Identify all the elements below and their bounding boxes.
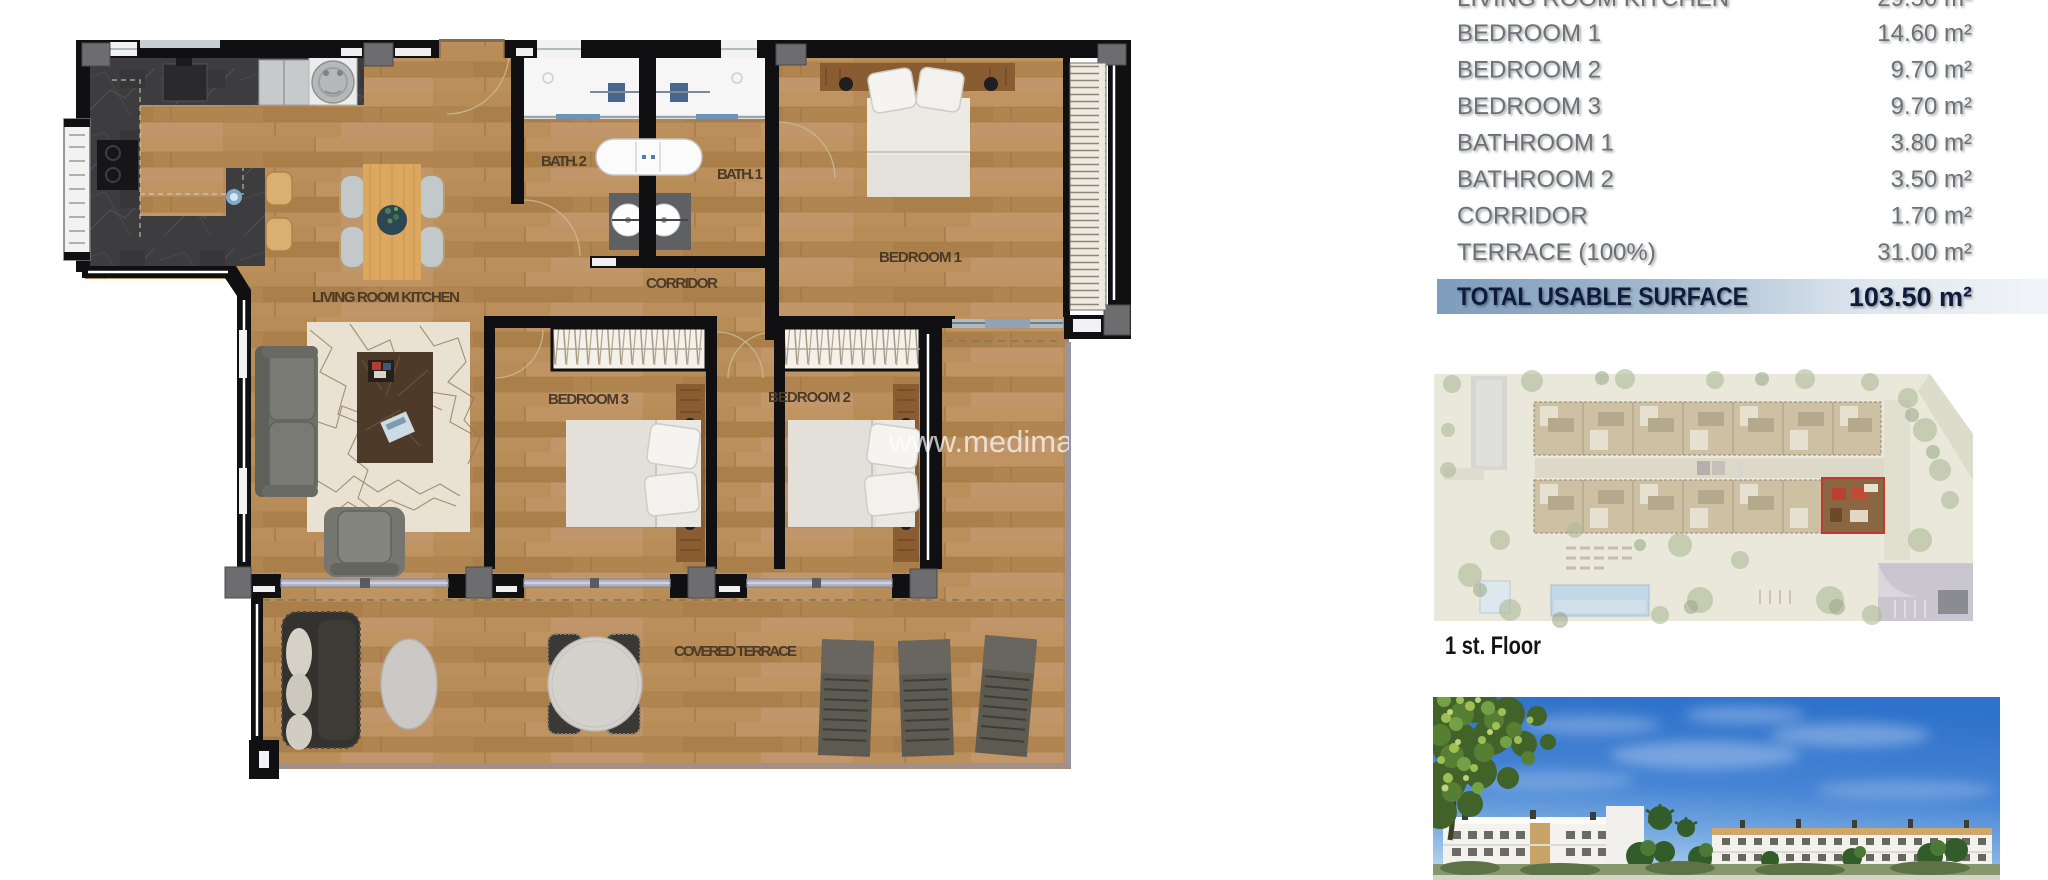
svg-text:BEDROOM 1: BEDROOM 1 <box>879 249 962 266</box>
svg-text:3.80 m²: 3.80 m² <box>1891 130 1972 157</box>
svg-text:BEDROOM 2: BEDROOM 2 <box>768 389 851 406</box>
svg-text:CORRIDOR: CORRIDOR <box>646 275 718 292</box>
svg-text:29.50 m²: 29.50 m² <box>1877 0 1972 12</box>
svg-text:3.50 m²: 3.50 m² <box>1891 166 1972 193</box>
svg-text:LIVING ROOM KITCHEN: LIVING ROOM KITCHEN <box>312 289 460 306</box>
svg-text:LIVING ROOM KITCHEN: LIVING ROOM KITCHEN <box>1457 0 1729 12</box>
svg-text:BEDROOM 1: BEDROOM 1 <box>1457 20 1601 47</box>
svg-text:CORRIDOR: CORRIDOR <box>1457 203 1588 230</box>
svg-text:9.70 m²: 9.70 m² <box>1891 57 1972 84</box>
svg-text:103.50 m²: 103.50 m² <box>1849 282 1972 312</box>
svg-text:TERRACE (100%): TERRACE (100%) <box>1457 239 1656 266</box>
svg-text:BATH. 1: BATH. 1 <box>717 166 763 183</box>
svg-text:1 st. Floor: 1 st. Floor <box>1445 632 1541 660</box>
svg-text:www.medimareiendas.com: www.medimareiendas.com <box>888 424 1259 459</box>
svg-text:1.70 m²: 1.70 m² <box>1891 203 1972 230</box>
svg-text:BEDROOM 3: BEDROOM 3 <box>548 391 629 408</box>
svg-text:TOTAL USABLE SURFACE: TOTAL USABLE SURFACE <box>1457 283 1748 311</box>
svg-text:14.60 m²: 14.60 m² <box>1877 20 1972 47</box>
svg-text:COVERED TERRACE: COVERED TERRACE <box>674 643 797 660</box>
svg-text:BEDROOM 3: BEDROOM 3 <box>1457 93 1601 120</box>
svg-text:BATHROOM 2: BATHROOM 2 <box>1457 166 1614 193</box>
svg-text:BEDROOM 2: BEDROOM 2 <box>1457 57 1601 84</box>
svg-text:BATHROOM 1: BATHROOM 1 <box>1457 130 1614 157</box>
svg-text:9.70 m²: 9.70 m² <box>1891 93 1972 120</box>
svg-text:31.00 m²: 31.00 m² <box>1877 239 1972 266</box>
svg-text:BATH. 2: BATH. 2 <box>541 153 587 170</box>
